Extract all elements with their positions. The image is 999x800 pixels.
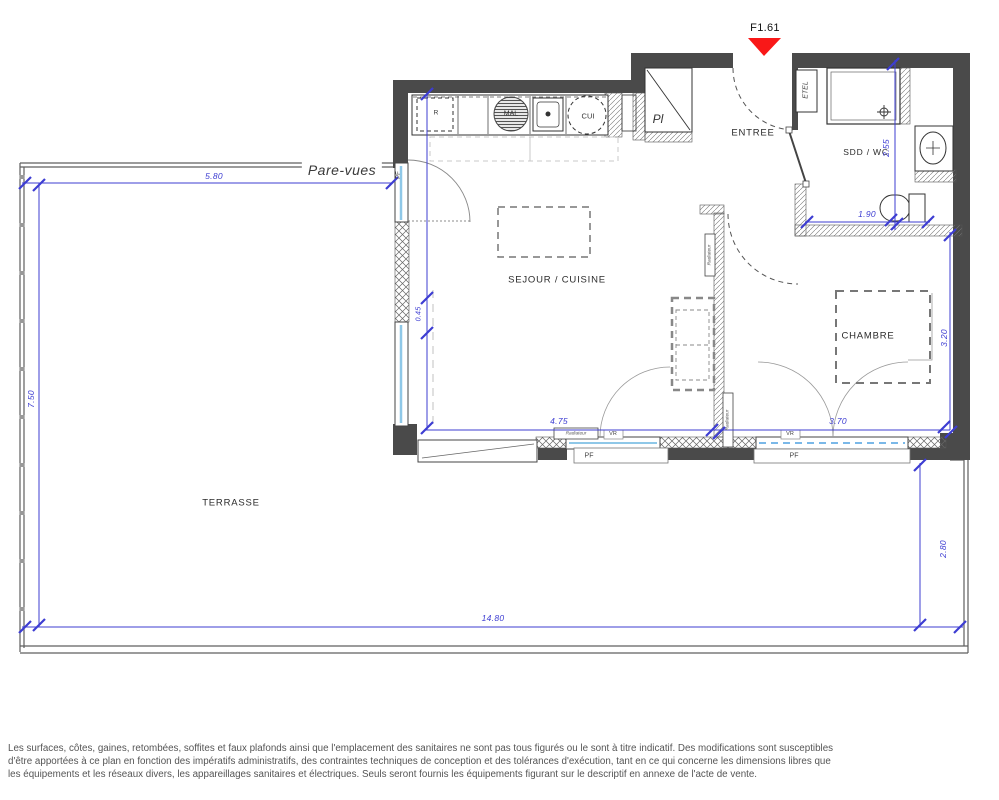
window-sill-chambre (754, 449, 910, 463)
radiator-label-sejour: Radiateur (566, 432, 587, 437)
room-label-terrasse: TERRASSE (202, 498, 260, 509)
chambre-door-swing (728, 214, 798, 284)
french-window-swing-sejour (600, 367, 670, 437)
dimension-ticks (19, 58, 966, 633)
sdd-door-leaf (786, 127, 809, 187)
dim-terrace-right: 2.80 (938, 540, 948, 558)
window-door-swing-sejour-left (408, 160, 470, 222)
lot-label: F1.61 (750, 22, 780, 34)
terrace-outline (20, 163, 968, 653)
upper-cabinets (430, 137, 618, 161)
french-window-swing-chambre-left (758, 362, 833, 437)
footer-line-1: Les surfaces, côtes, gaines, retombées, … (8, 742, 993, 755)
dining-table (498, 207, 590, 257)
room-label-sejour-cuisine: SEJOUR / CUISINE (508, 275, 606, 286)
vr-label-chambre: VR (786, 431, 794, 437)
pf-label-chambre-window: PF (790, 453, 799, 460)
vr-label-sejour: VR (609, 431, 617, 437)
dim-terrace-left: 7.50 (26, 390, 36, 408)
floor-plan-svg (0, 0, 999, 800)
room-label-entree: ENTREE (731, 128, 774, 139)
radiator-label-entree: Radiateur (708, 245, 713, 266)
lot-marker-triangle (748, 38, 781, 56)
pf-label-sejour-window: PF (585, 453, 594, 460)
kitchen-fixtures (412, 95, 636, 161)
footer-disclaimer: Les surfaces, côtes, gaines, retombées, … (8, 742, 993, 781)
room-label-placard: Pl (653, 112, 664, 126)
pare-vues-label: Pare-vues (302, 162, 382, 178)
pf-label-left-window: PF (396, 171, 402, 179)
footer-line-3: les équipements et les réseaux divers, l… (8, 768, 993, 781)
cabinet (672, 298, 714, 390)
dim-chambre-width: 3.70 (829, 416, 847, 426)
washer-label: MAL (504, 111, 518, 118)
dim-terrace-bottom: 14.80 (482, 613, 505, 623)
bathroom-fixtures (796, 68, 953, 222)
radiator-label-chambre: Radiateur (726, 410, 731, 431)
fridge-label: R (434, 110, 439, 117)
furniture (433, 207, 932, 447)
dim-terrace-top: 5.80 (205, 171, 223, 181)
dim-left-wall-segment: 0.45 (416, 307, 423, 322)
entry-door-swing (733, 68, 795, 130)
dim-sdd-height: 2.55 (881, 139, 891, 157)
room-label-chambre: CHAMBRE (841, 331, 894, 342)
dim-sejour-width: 4.75 (550, 416, 568, 426)
dimension-lines (22, 60, 963, 627)
etel-label: ETEL (803, 81, 810, 99)
cooker-label: CUI (582, 112, 595, 121)
dim-sdd-width: 1.90 (858, 209, 876, 219)
footer-line-2: d'être apportées à ce plan en fonction d… (8, 755, 993, 768)
floor-plan-canvas: F1.61 SEJOUR / CUISINE ENTREE SDD / WC C… (0, 0, 999, 800)
dim-chambre-height: 3.20 (939, 329, 949, 347)
